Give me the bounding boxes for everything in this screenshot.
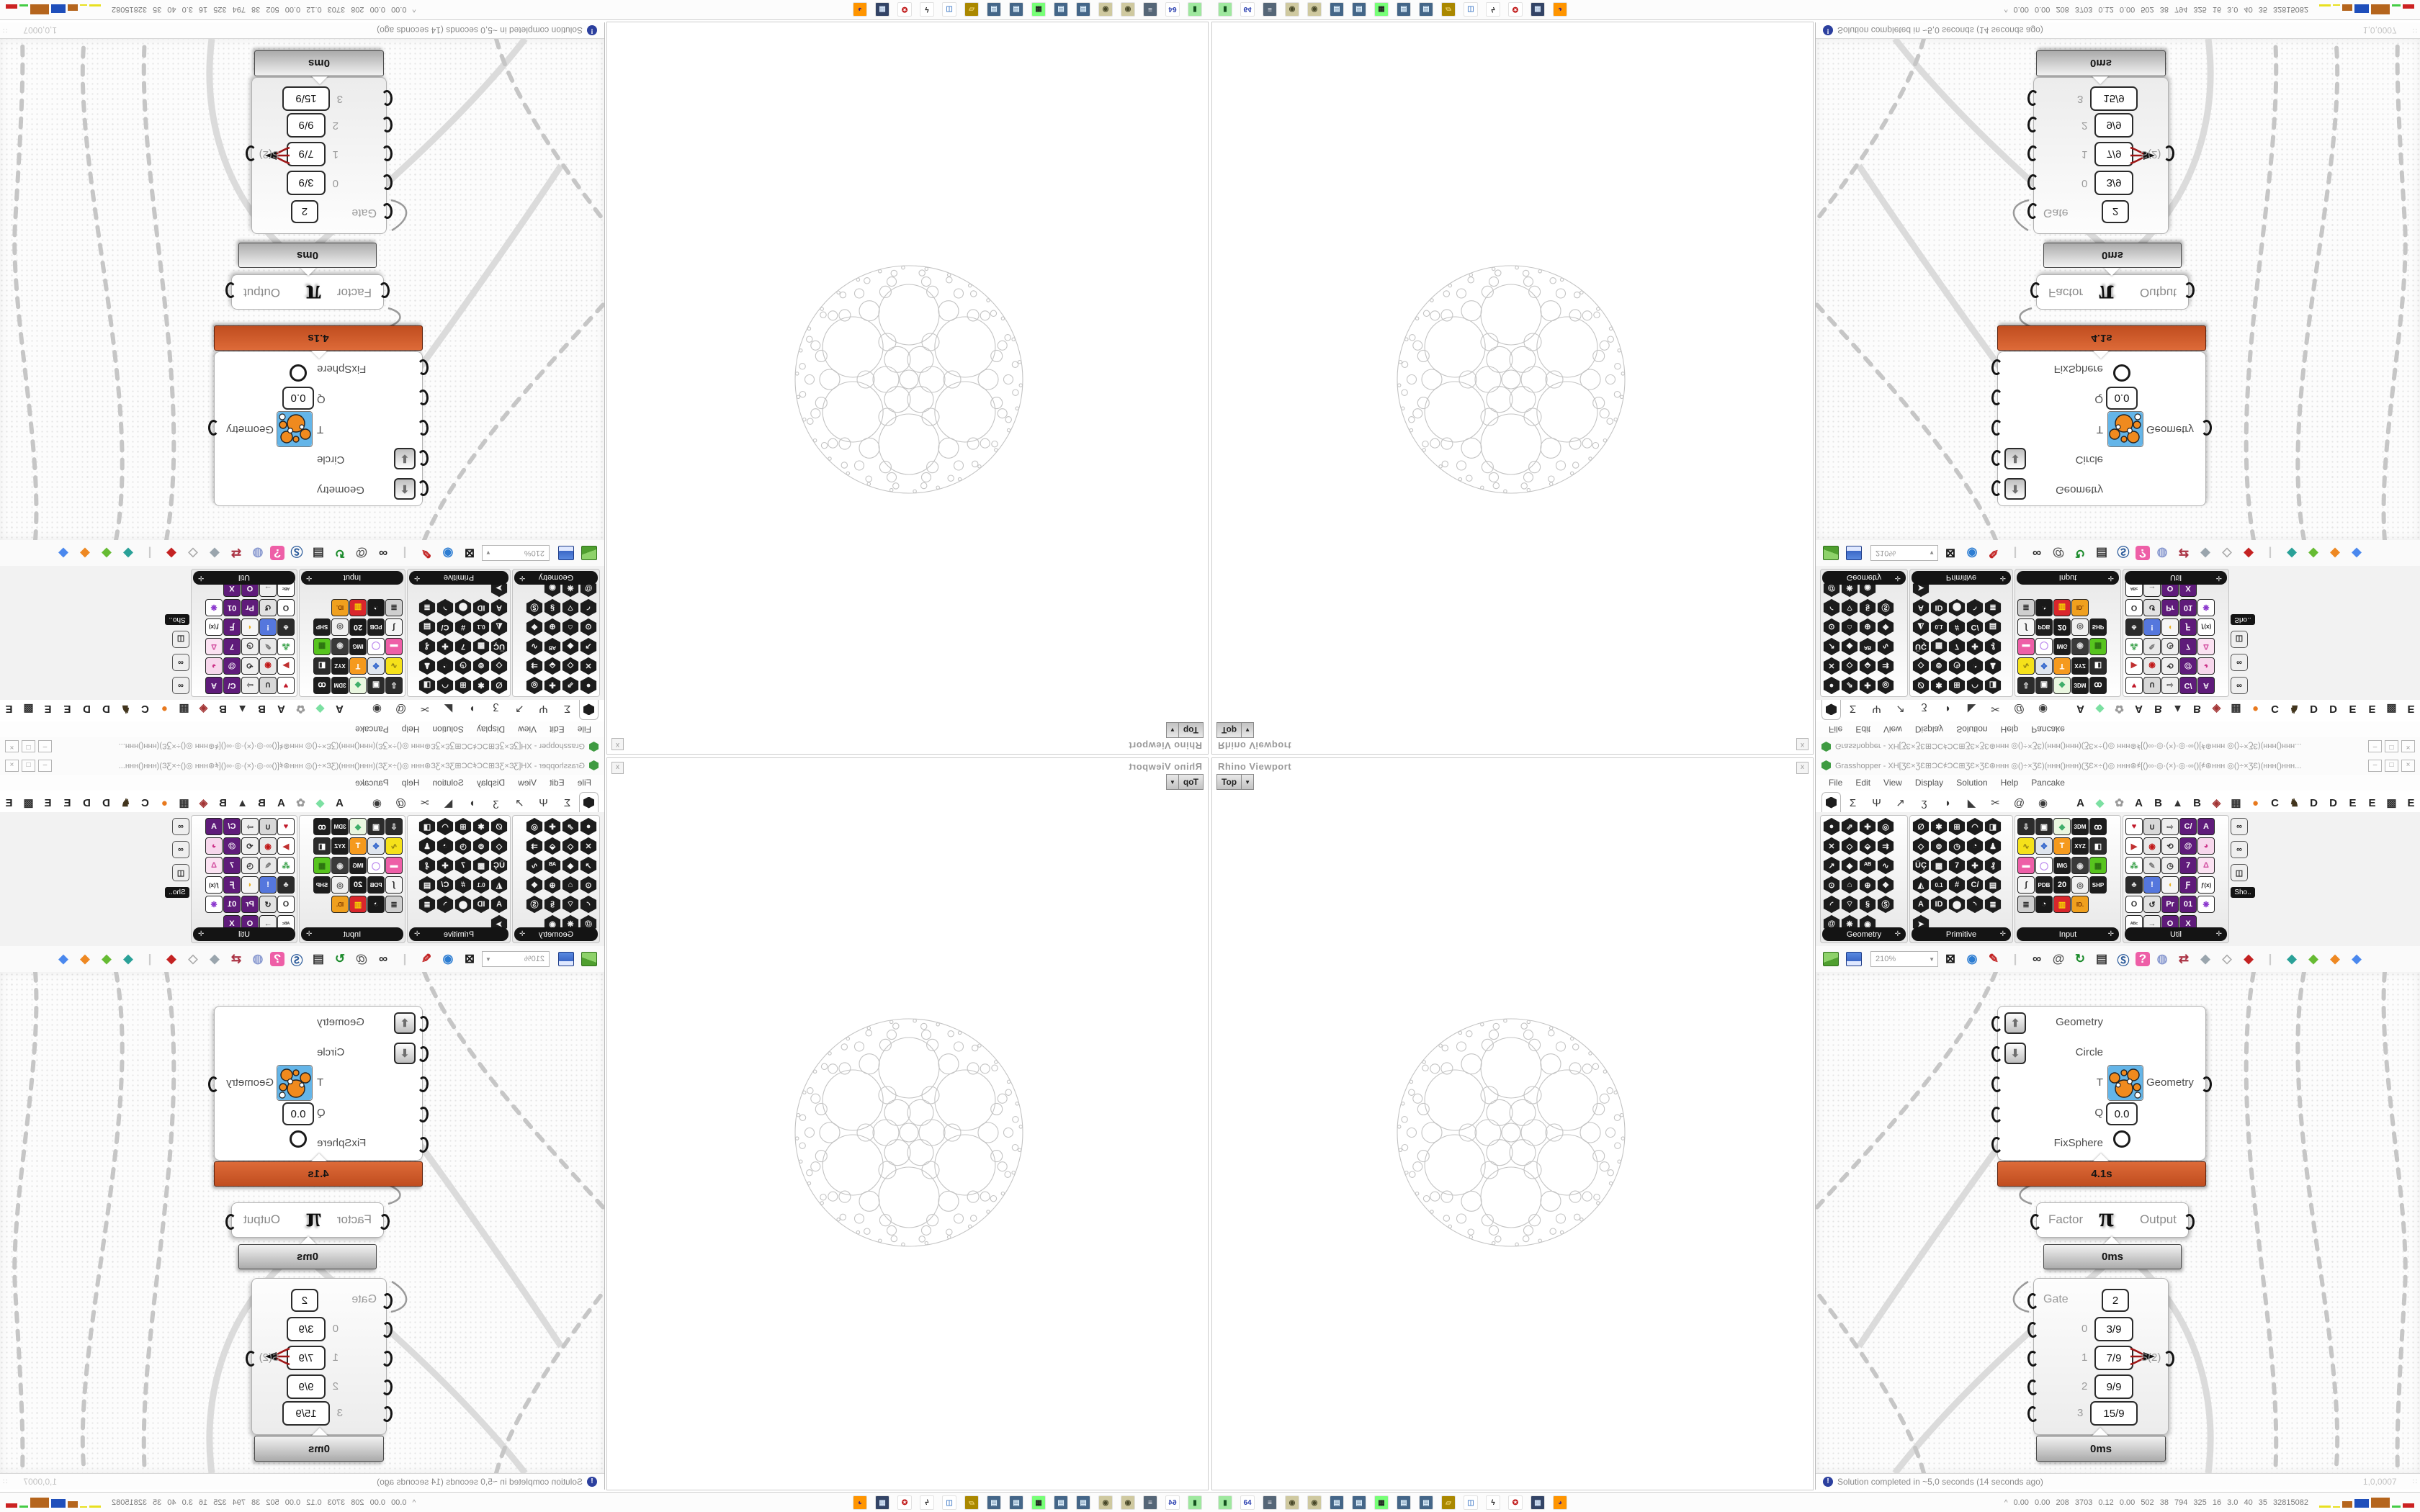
- primitive-param-icon[interactable]: ♟: [418, 657, 436, 675]
- group-label-util[interactable]: Util✛: [2125, 927, 2227, 941]
- primitive-param-icon[interactable]: ≣: [418, 896, 436, 913]
- primitive-param-icon[interactable]: 0.1: [472, 618, 490, 636]
- zoom-level-box[interactable]: 210% ▼: [1870, 951, 1938, 967]
- toolbar-icon[interactable]: |: [140, 546, 159, 560]
- menu-item[interactable]: Solution: [432, 778, 463, 788]
- plugin-category-tab[interactable]: B: [252, 700, 272, 715]
- category-tab-icon[interactable]: ʒ: [1912, 700, 1936, 715]
- toolbar-icon[interactable]: ✎: [1984, 952, 2003, 966]
- plugin-category-tab[interactable]: D: [77, 700, 97, 715]
- row-value-2[interactable]: 9/9: [2094, 113, 2133, 138]
- plugin-category-tab[interactable]: B: [252, 797, 272, 812]
- grasshopper-canvas[interactable]: ⬆ ⬇ Geometry Circle T Q FixSphere: [1816, 972, 2420, 1473]
- toolbar-icon[interactable]: ◆: [2304, 952, 2323, 966]
- category-tab-icon[interactable]: ✂: [413, 700, 436, 716]
- input-param-icon[interactable]: IMG: [2053, 638, 2071, 655]
- plugin-category-tab[interactable]: A: [2071, 700, 2090, 715]
- toolbar-icon[interactable]: ∞: [2027, 952, 2046, 966]
- primitive-param-icon[interactable]: ▩: [1930, 857, 1948, 874]
- menu-item[interactable]: File: [1829, 724, 1842, 734]
- taskbar-app-icon[interactable]: ▱: [964, 2, 979, 17]
- gate-value-box[interactable]: 2: [2102, 200, 2129, 223]
- taskbar-app-icon[interactable]: ▤: [987, 2, 1001, 17]
- category-tab-icon[interactable]: @: [2007, 700, 2031, 715]
- input-param-icon[interactable]: PDB: [367, 618, 385, 636]
- show-group-icon[interactable]: ◫: [2231, 864, 2248, 881]
- geometry-param-icon[interactable]: ❖: [1877, 876, 1894, 894]
- category-tab-icon[interactable]: ʒ: [1912, 797, 1936, 812]
- toolbar-icon[interactable]: ▤: [2092, 546, 2111, 560]
- plugin-category-tab[interactable]: D: [77, 797, 97, 812]
- primitive-param-icon[interactable]: ✚: [1966, 857, 1984, 874]
- row-value-3[interactable]: 15/9: [282, 1401, 330, 1426]
- primitive-param-icon[interactable]: ⊚: [472, 837, 490, 855]
- toolbar-icon[interactable]: ?: [2136, 952, 2150, 966]
- util-param-icon[interactable]: ◕: [2197, 837, 2215, 855]
- primitive-param-icon[interactable]: ⊞: [1948, 818, 1966, 835]
- input-param-icon[interactable]: 20: [349, 876, 367, 894]
- open-file-icon[interactable]: [1823, 546, 1839, 560]
- primitive-param-icon[interactable]: ÜÇ: [1912, 857, 1930, 874]
- util-param-icon[interactable]: ▶: [2125, 837, 2143, 855]
- util-param-icon[interactable]: ◷: [241, 638, 259, 655]
- geometry-param-icon[interactable]: Ⓢ: [1877, 896, 1894, 913]
- toolbar-icon[interactable]: ▤: [309, 546, 328, 560]
- primitive-param-icon[interactable]: ◠: [1966, 677, 1984, 694]
- input-param-icon[interactable]: ▦: [2089, 857, 2107, 874]
- group-label-geometry[interactable]: Geometry✛: [514, 927, 598, 941]
- geometry-param-icon[interactable]: ↗: [1823, 857, 1840, 874]
- toolbar-icon[interactable]: ◆: [2196, 546, 2215, 560]
- group-label-input[interactable]: Input✛: [301, 571, 403, 585]
- toolbar-icon[interactable]: |: [2006, 546, 2025, 560]
- primitive-param-icon[interactable]: A: [1912, 896, 1930, 913]
- plugin-category-tab[interactable]: ▦: [2226, 796, 2246, 812]
- input-param-icon[interactable]: ▬: [2017, 857, 2035, 874]
- toolbar-icon[interactable]: ◉: [1963, 952, 1981, 966]
- util-param-icon[interactable]: O: [277, 896, 295, 913]
- geometry-param-icon[interactable]: ⊙: [580, 876, 597, 894]
- toolbar-icon[interactable]: ?: [270, 546, 284, 560]
- util-param-icon[interactable]: @: [223, 837, 241, 855]
- primitive-param-icon[interactable]: 0.1: [1930, 876, 1948, 894]
- plugin-category-tab[interactable]: E: [2343, 700, 2362, 715]
- category-tab-icon[interactable]: @: [389, 700, 413, 715]
- plugin-category-tab[interactable]: C: [135, 700, 155, 715]
- pi-component[interactable]: Factor π Output: [2036, 274, 2189, 310]
- input-param-icon[interactable]: IMG: [349, 638, 367, 655]
- row-value-3[interactable]: 15/9: [2090, 86, 2138, 111]
- taskbar-app-icon[interactable]: ≡: [1263, 1495, 1277, 1510]
- category-tab-icon[interactable]: ↗: [1888, 796, 1912, 812]
- plugin-category-tab[interactable]: B: [2187, 700, 2207, 715]
- geometry-param-icon[interactable]: ∿: [526, 857, 543, 874]
- toolbar-icon[interactable]: ✎: [417, 546, 436, 560]
- menu-item[interactable]: File: [1829, 778, 1842, 788]
- menu-item[interactable]: Solution: [432, 724, 463, 734]
- tab-params-selected[interactable]: [579, 700, 599, 720]
- util-param-icon[interactable]: ƒ(x): [2197, 876, 2215, 894]
- grasshopper-titlebar[interactable]: Grasshopper - XH[ƷƐ×ƷƐ⊞ƆC҂ƆC⊞ƷƐ×ƷƐ⊛ʜʜʜ ◎…: [1816, 737, 2420, 756]
- input-param-icon[interactable]: ◧: [313, 837, 331, 855]
- plugin-category-tab[interactable]: ◆: [310, 796, 330, 812]
- primitive-param-icon[interactable]: ◇: [1912, 837, 1930, 855]
- util-param-icon[interactable]: 01: [223, 896, 241, 913]
- plugin-category-tab[interactable]: E: [2401, 797, 2420, 812]
- input-param-icon[interactable]: ✥: [367, 837, 385, 855]
- plugin-category-tab[interactable]: E: [0, 797, 19, 812]
- primitive-param-icon[interactable]: ID: [472, 599, 490, 616]
- plugin-category-tab[interactable]: ♞: [116, 700, 135, 716]
- tray-expand-icon[interactable]: ^: [412, 6, 416, 14]
- primitive-param-icon[interactable]: ◨: [1984, 677, 2002, 694]
- util-param-icon[interactable]: ⟲: [2161, 837, 2179, 855]
- input-grip-2[interactable]: [2027, 1380, 2038, 1396]
- util-param-icon[interactable]: Pr: [241, 599, 259, 616]
- input-param-icon[interactable]: ◎: [331, 618, 349, 636]
- group-label-util[interactable]: Util✛: [2125, 571, 2227, 585]
- toolbar-icon[interactable]: ◆: [76, 546, 94, 560]
- input-grip-circle[interactable]: [1991, 1046, 2002, 1063]
- input-param-icon[interactable]: ∫: [385, 876, 403, 894]
- output-grip-s2[interactable]: [246, 145, 256, 161]
- toolbar-icon[interactable]: ◍: [2153, 952, 2172, 966]
- toolbar-icon[interactable]: ◆: [2282, 952, 2301, 966]
- toolbar-icon[interactable]: ◉: [439, 546, 457, 560]
- taskbar-app-icon[interactable]: ▤: [1397, 2, 1411, 17]
- input-param-icon[interactable]: SHP: [2089, 876, 2107, 894]
- fixsphere-component[interactable]: ⬆ ⬇ Geometry Circle T Q FixSphere: [1997, 351, 2206, 506]
- taskbar-app-icon[interactable]: ▦: [875, 1495, 889, 1510]
- q-value-box[interactable]: 0.0: [2106, 387, 2138, 410]
- input-param-icon[interactable]: ID.: [331, 599, 349, 616]
- plugin-category-tab[interactable]: E: [2343, 797, 2362, 812]
- toolbar-icon[interactable]: |: [2261, 952, 2280, 966]
- category-tab-icon[interactable]: ✂: [413, 796, 436, 812]
- taskbar-app-icon[interactable]: ▤: [1419, 1495, 1433, 1510]
- plugin-category-tab[interactable]: A: [272, 700, 291, 715]
- geometry-param-icon[interactable]: ⊕: [1859, 876, 1876, 894]
- input-param-icon[interactable]: ✥: [2035, 837, 2053, 855]
- input-param-icon[interactable]: ∿: [2017, 837, 2035, 855]
- input-grip-t[interactable]: [1991, 420, 2002, 436]
- util-param-icon[interactable]: ◷: [2161, 638, 2179, 655]
- input-param-icon[interactable]: IMG: [349, 857, 367, 874]
- pi-component[interactable]: Factor π Output: [231, 1202, 384, 1238]
- primitive-param-icon[interactable]: ◝: [436, 599, 454, 616]
- toolbar-icon[interactable]: ◆: [2326, 546, 2344, 560]
- geometry-param-icon[interactable]: ⌔: [562, 599, 579, 616]
- plugin-category-tab[interactable]: ✿: [291, 700, 310, 716]
- close-icon[interactable]: x: [611, 762, 624, 774]
- close-button[interactable]: ×: [5, 741, 19, 753]
- primitive-param-icon[interactable]: A: [490, 896, 508, 913]
- input-param-icon[interactable]: PDB: [2035, 876, 2053, 894]
- primitive-param-icon[interactable]: ◨: [418, 677, 436, 694]
- resize-grip-icon[interactable]: ∷: [2413, 1478, 2418, 1486]
- minimize-button[interactable]: –: [2368, 760, 2382, 772]
- primitive-param-icon[interactable]: ◝: [1966, 896, 1984, 913]
- util-param-icon[interactable]: Δ: [205, 638, 223, 655]
- input-param-icon[interactable]: PDB: [2035, 618, 2053, 636]
- toolbar-icon[interactable]: ◆: [2196, 952, 2215, 966]
- group-label-util[interactable]: Util✛: [193, 927, 295, 941]
- util-param-icon[interactable]: ⁂: [277, 638, 295, 655]
- toolbar-icon[interactable]: Ⓢ: [287, 950, 306, 968]
- taskbar-app-icon[interactable]: ▤: [1330, 1495, 1344, 1510]
- util-param-icon[interactable]: ✎: [2143, 857, 2161, 874]
- plugin-category-tab[interactable]: A: [330, 797, 349, 812]
- toolbar-icon[interactable]: |: [395, 546, 414, 560]
- toolbar-icon[interactable]: ✎: [1984, 546, 2003, 560]
- category-tab-icon[interactable]: ✂: [1984, 796, 2007, 812]
- group-label-show[interactable]: Sho..: [2231, 614, 2255, 625]
- primitive-param-icon[interactable]: ◷: [454, 657, 472, 675]
- viewport-tab-top[interactable]: Top ▼: [1216, 774, 1254, 790]
- output-grip-s2[interactable]: [246, 1351, 256, 1367]
- toolbar-icon[interactable]: @: [2049, 546, 2068, 560]
- input-param-icon[interactable]: ⇩: [385, 818, 403, 835]
- arrow-up-button[interactable]: ⬆: [394, 1012, 416, 1034]
- taskbar-app-icon[interactable]: ▤: [1352, 1495, 1366, 1510]
- taskbar-app-icon[interactable]: ✪: [897, 1495, 912, 1510]
- primitive-param-icon[interactable]: 7: [454, 857, 472, 874]
- geometry-param-icon[interactable]: ◎: [526, 818, 543, 835]
- util-param-icon[interactable]: ƒ(x): [2197, 618, 2215, 636]
- input-param-icon[interactable]: ▥: [349, 896, 367, 913]
- input-param-icon[interactable]: ID.: [2071, 599, 2089, 616]
- input-param-icon[interactable]: ▬: [385, 857, 403, 874]
- taskbar-app-icon[interactable]: ◕: [853, 2, 867, 17]
- menu-item[interactable]: Display: [477, 778, 505, 788]
- geometry-param-icon[interactable]: ⊙: [580, 618, 597, 636]
- geometry-param-icon[interactable]: Ⓢ: [526, 599, 543, 616]
- resize-grip-icon[interactable]: ∷: [2, 1478, 7, 1486]
- util-param-icon[interactable]: ∪: [259, 818, 277, 835]
- toolbar-icon[interactable]: ◆: [2326, 952, 2344, 966]
- minimize-button[interactable]: –: [38, 741, 52, 753]
- input-param-icon[interactable]: ◉: [331, 857, 349, 874]
- row-value-0[interactable]: 3/9: [2094, 1317, 2133, 1341]
- primitive-param-icon[interactable]: 7: [1948, 857, 1966, 874]
- show-group-icon[interactable]: ∞: [172, 654, 189, 671]
- primitive-param-icon[interactable]: ₰: [418, 638, 436, 655]
- util-param-icon[interactable]: C/: [2179, 677, 2197, 694]
- group-label-input[interactable]: Input✛: [301, 927, 403, 941]
- toolbar-icon[interactable]: ▤: [2092, 952, 2111, 966]
- input-param-icon[interactable]: ≣: [2017, 599, 2035, 616]
- chevron-down-icon[interactable]: ▼: [483, 956, 491, 963]
- row-value-2[interactable]: 9/9: [2094, 1374, 2133, 1399]
- util-param-icon[interactable]: @: [2179, 657, 2197, 675]
- util-param-icon[interactable]: Ƒ: [223, 876, 241, 894]
- geometry-param-icon[interactable]: ⇉: [1877, 657, 1894, 675]
- geometry-param-icon[interactable]: ◇: [562, 657, 579, 675]
- taskbar-app-icon[interactable]: ▦: [1531, 2, 1545, 17]
- show-group-icon[interactable]: ◫: [2231, 631, 2248, 648]
- close-icon[interactable]: x: [1796, 738, 1809, 750]
- primitive-param-icon[interactable]: #: [454, 618, 472, 636]
- taskbar-app-icon[interactable]: ◫: [942, 1495, 956, 1510]
- plugin-category-tab[interactable]: B: [213, 797, 233, 812]
- primitive-param-icon[interactable]: ◠: [436, 677, 454, 694]
- util-param-icon[interactable]: ◕: [205, 657, 223, 675]
- primitive-param-icon[interactable]: C/: [436, 876, 454, 894]
- chevron-down-icon[interactable]: ▼: [1167, 779, 1178, 786]
- input-param-icon[interactable]: ▦: [2089, 638, 2107, 655]
- util-param-icon[interactable]: !: [259, 876, 277, 894]
- arrow-up-button[interactable]: ⬆: [2004, 1012, 2026, 1034]
- geometry-param-icon[interactable]: ◜: [580, 896, 597, 913]
- plugin-category-tab[interactable]: ✿: [2110, 796, 2129, 812]
- toolbar-icon[interactable]: ◇: [2218, 546, 2236, 560]
- category-tab-icon[interactable]: Ψ: [1865, 700, 1888, 715]
- geometry-param-icon[interactable]: §: [544, 599, 561, 616]
- util-param-icon[interactable]: ▶: [2125, 657, 2143, 675]
- show-group-icon[interactable]: ∞: [2231, 818, 2248, 835]
- input-param-icon[interactable]: 3DM: [2071, 677, 2089, 694]
- plugin-category-tab[interactable]: E: [2362, 797, 2382, 812]
- toolbar-icon[interactable]: |: [140, 952, 159, 966]
- group-label-show[interactable]: Sho..: [2231, 887, 2255, 898]
- primitive-param-icon[interactable]: ◷: [1948, 837, 1966, 855]
- input-param-icon[interactable]: ꝏ: [2089, 818, 2107, 835]
- primitive-param-icon[interactable]: A: [1912, 599, 1930, 616]
- stream-filter-component[interactable]: Gate 2 0 3/9 1 7/9 2 9/9 3 15/9: [2033, 1278, 2169, 1435]
- show-group-icon[interactable]: ∞: [172, 677, 189, 694]
- geometry-param-icon[interactable]: ✚: [544, 677, 561, 694]
- category-tab-icon[interactable]: ↗: [508, 796, 532, 812]
- geometry-param-icon[interactable]: §: [1859, 896, 1876, 913]
- menu-item[interactable]: Display: [477, 724, 505, 734]
- geometry-param-icon[interactable]: §: [1859, 599, 1876, 616]
- taskbar-app-icon[interactable]: 64: [1240, 1495, 1255, 1510]
- category-tab-icon[interactable]: ◗: [460, 797, 484, 812]
- util-param-icon[interactable]: ◖: [2161, 618, 2179, 636]
- output-grip-pi[interactable]: [2184, 1214, 2195, 1230]
- util-param-icon[interactable]: ♥: [277, 818, 295, 835]
- input-grip-factor[interactable]: [2030, 282, 2041, 299]
- chevron-down-icon[interactable]: ▼: [1929, 956, 1937, 963]
- toolbar-icon[interactable]: ⇄: [227, 546, 246, 560]
- menu-item[interactable]: Display: [1915, 778, 1943, 788]
- plugin-category-tab[interactable]: ●: [2246, 797, 2265, 812]
- input-grip-3[interactable]: [2027, 1406, 2038, 1423]
- geometry-param-icon[interactable]: ⇉: [526, 837, 543, 855]
- util-param-icon[interactable]: ƒ(x): [205, 876, 223, 894]
- show-group-icon[interactable]: ◫: [172, 864, 189, 881]
- taskbar-app-icon[interactable]: ▤: [1419, 2, 1433, 17]
- input-grip-1[interactable]: [2027, 145, 2038, 162]
- input-grip-geometry[interactable]: [1991, 1016, 2002, 1032]
- toolbar-icon[interactable]: ◆: [54, 546, 73, 560]
- toolbar-icon[interactable]: ⊠: [1941, 952, 1960, 966]
- output-grip-pi[interactable]: [2184, 282, 2195, 298]
- geometry-param-icon[interactable]: ✕: [1823, 657, 1840, 675]
- util-param-icon[interactable]: 7: [2179, 857, 2197, 874]
- primitive-param-icon[interactable]: C/: [1966, 618, 1984, 636]
- menu-item[interactable]: Pancake: [355, 778, 389, 788]
- input-param-icon[interactable]: ▬: [385, 638, 403, 655]
- util-param-icon[interactable]: 01: [2179, 896, 2197, 913]
- menu-item[interactable]: Pancake: [2031, 778, 2065, 788]
- plugin-category-tab[interactable]: D: [2323, 797, 2343, 812]
- geometry-param-icon[interactable]: ⌂: [1841, 876, 1858, 894]
- output-grip-geometry[interactable]: [2201, 420, 2212, 436]
- geometry-param-icon[interactable]: ∿: [1877, 857, 1894, 874]
- taskbar-app-icon[interactable]: ≡: [1263, 2, 1277, 17]
- input-param-icon[interactable]: ▥: [349, 599, 367, 616]
- geometry-param-icon[interactable]: ●: [1823, 818, 1840, 835]
- plugin-category-tab[interactable]: D: [2304, 797, 2323, 812]
- input-param-icon[interactable]: ∿: [2017, 657, 2035, 675]
- input-param-icon[interactable]: ∿: [385, 837, 403, 855]
- input-param-icon[interactable]: ▥: [2053, 599, 2071, 616]
- input-param-icon[interactable]: ▣: [2035, 818, 2053, 835]
- util-param-icon[interactable]: !: [259, 618, 277, 636]
- input-param-icon[interactable]: SHP: [313, 876, 331, 894]
- show-group-icon[interactable]: ∞: [2231, 677, 2248, 694]
- plugin-category-tab[interactable]: ▦: [2226, 700, 2246, 716]
- input-param-icon[interactable]: ◔: [2035, 896, 2053, 913]
- input-param-icon[interactable]: ◉: [2071, 857, 2089, 874]
- taskbar-app-icon[interactable]: ◉: [1285, 1495, 1299, 1510]
- input-param-icon[interactable]: ◎: [2071, 618, 2089, 636]
- primitive-param-icon[interactable]: ◔: [1966, 657, 1984, 675]
- toolbar-icon[interactable]: ◆: [2282, 546, 2301, 560]
- group-label-util[interactable]: Util✛: [193, 571, 295, 585]
- tray-expand-icon[interactable]: ^: [2004, 6, 2008, 14]
- input-param-icon[interactable]: ◧: [2089, 837, 2107, 855]
- input-param-icon[interactable]: ≣: [385, 599, 403, 616]
- geometry-param-icon[interactable]: ⌂: [562, 618, 579, 636]
- row-value-0[interactable]: 3/9: [2094, 171, 2133, 195]
- plugin-category-tab[interactable]: D: [2304, 700, 2323, 715]
- maximize-button[interactable]: □: [2385, 760, 2398, 772]
- input-grip-1[interactable]: [2027, 1351, 2038, 1367]
- primitive-param-icon[interactable]: ◭: [1912, 618, 1930, 636]
- plugin-category-tab[interactable]: D: [2323, 700, 2343, 715]
- input-param-icon[interactable]: ✥: [367, 657, 385, 675]
- util-param-icon[interactable]: ▶: [277, 837, 295, 855]
- util-param-icon[interactable]: ↺: [2143, 896, 2161, 913]
- tab-params-selected[interactable]: [579, 792, 599, 812]
- primitive-param-icon[interactable]: ⊚: [1930, 657, 1948, 675]
- util-param-icon[interactable]: Ƒ: [2179, 618, 2197, 636]
- fixsphere-component[interactable]: ⬆ ⬇ Geometry Circle T Q FixSphere: [214, 351, 423, 506]
- util-param-icon[interactable]: ♣: [277, 618, 295, 636]
- util-param-icon[interactable]: 01: [2179, 599, 2197, 616]
- primitive-param-icon[interactable]: ID: [472, 896, 490, 913]
- toolbar-icon[interactable]: ◇: [184, 952, 202, 966]
- input-grip-2[interactable]: [2027, 117, 2038, 133]
- util-param-icon[interactable]: O: [2125, 896, 2143, 913]
- toolbar-icon[interactable]: ◆: [2239, 952, 2258, 966]
- show-group-icon[interactable]: ∞: [172, 818, 189, 835]
- primitive-param-icon[interactable]: ✱: [472, 818, 490, 835]
- menu-item[interactable]: Edit: [550, 778, 565, 788]
- util-param-icon[interactable]: ❋: [205, 599, 223, 616]
- input-grip-geometry[interactable]: [1991, 480, 2002, 497]
- geometry-param-icon[interactable]: ⇗: [1841, 677, 1858, 694]
- category-tab-icon[interactable]: ✂: [1984, 700, 2007, 716]
- taskbar-app-icon[interactable]: ▮: [1218, 1495, 1232, 1510]
- util-param-icon[interactable]: 7: [223, 638, 241, 655]
- taskbar-app-icon[interactable]: ▤: [987, 1495, 1001, 1510]
- input-grip-t[interactable]: [1991, 1076, 2002, 1093]
- util-param-icon[interactable]: ↺: [2143, 599, 2161, 616]
- input-param-icon[interactable]: 20: [349, 618, 367, 636]
